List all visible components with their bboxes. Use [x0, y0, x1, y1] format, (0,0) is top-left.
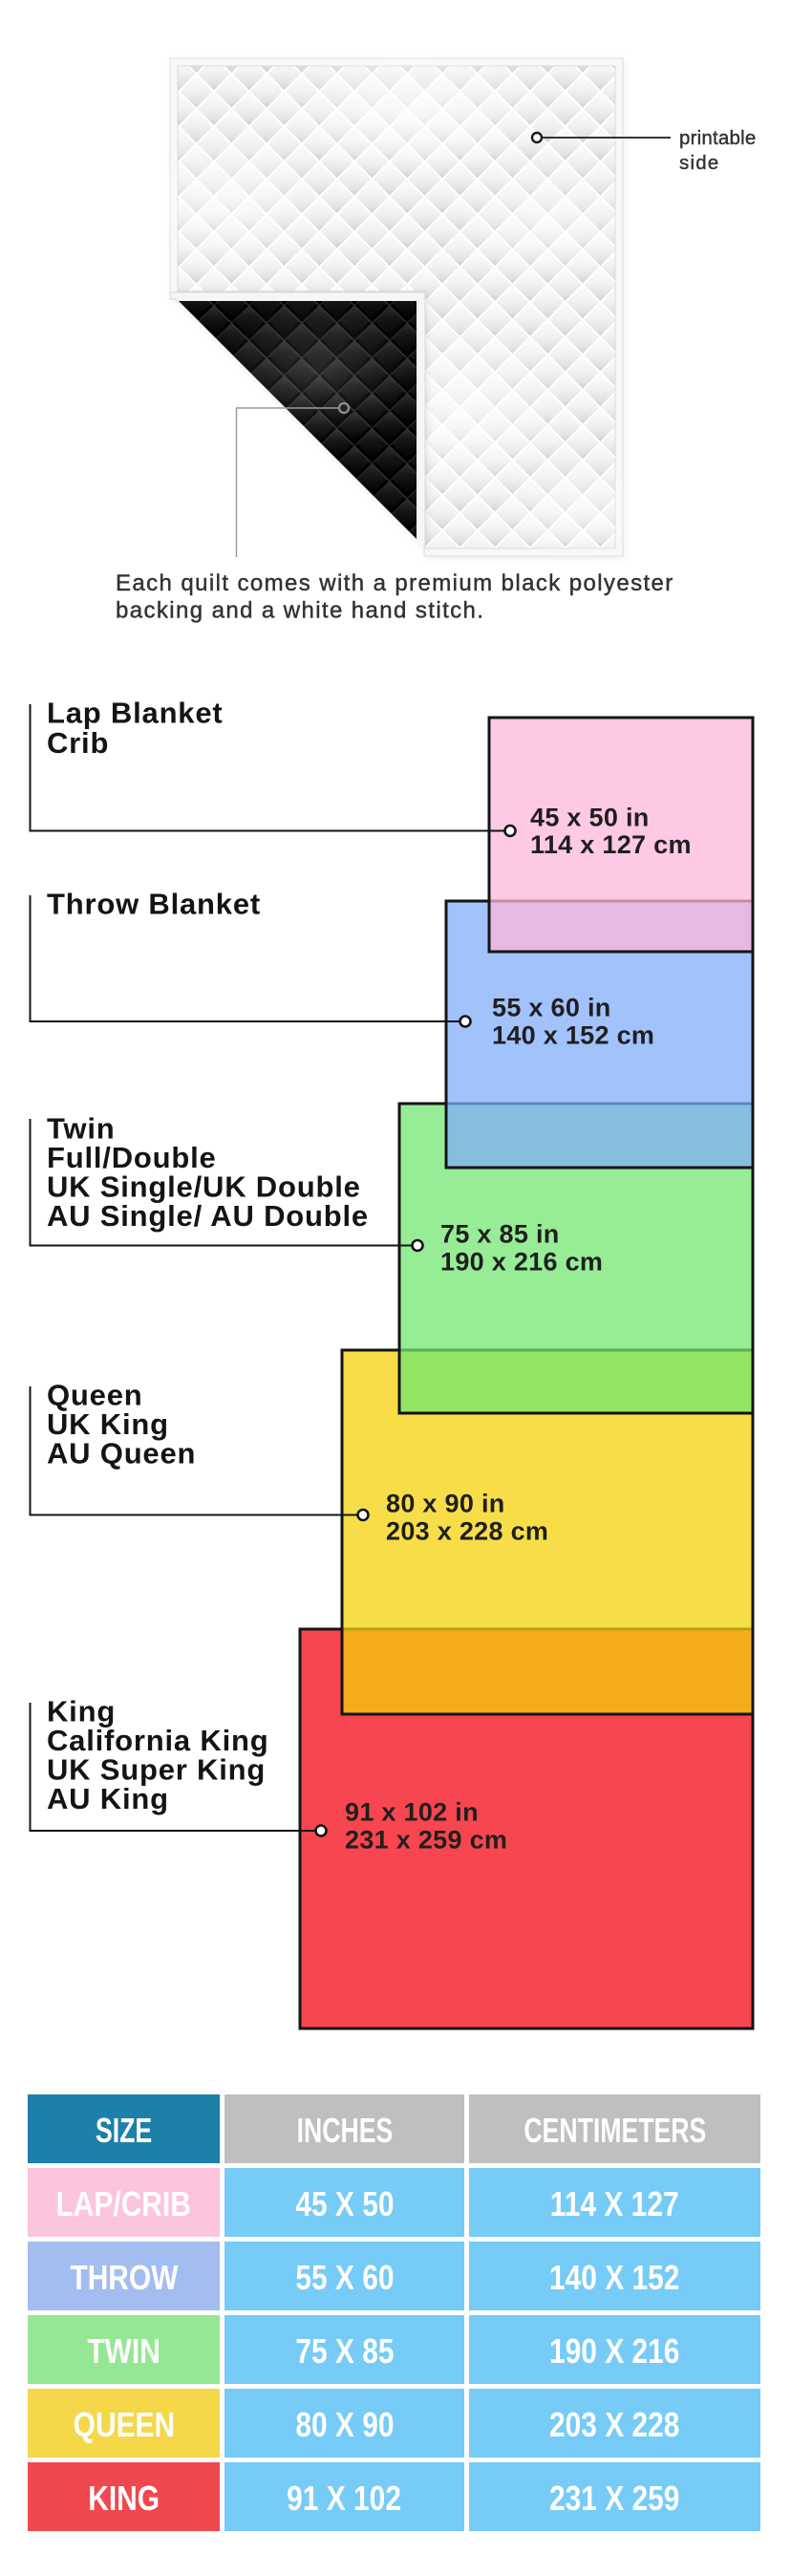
svg-text:Throw Blanket: Throw Blanket — [47, 888, 261, 921]
svg-text:backing and a white hand stitc: backing and a white hand stitch. — [116, 598, 484, 624]
svg-text:Lap Blanket: Lap Blanket — [47, 697, 224, 730]
svg-text:Crib: Crib — [47, 726, 109, 760]
svg-text:114 x 127 cm: 114 x 127 cm — [530, 830, 692, 859]
svg-text:AU Single/ AU Double: AU Single/ AU Double — [47, 1199, 369, 1233]
svg-text:printable: printable — [679, 127, 756, 149]
svg-text:side: side — [679, 152, 719, 174]
svg-text:203 x 228 cm: 203 x 228 cm — [386, 1517, 548, 1546]
svg-text:AU King: AU King — [47, 1782, 169, 1815]
svg-text:190 x 216 cm: 190 x 216 cm — [440, 1248, 603, 1277]
svg-text:80 x 90 in: 80 x 90 in — [386, 1490, 505, 1518]
svg-text:75 x 85 in: 75 x 85 in — [440, 1220, 560, 1249]
svg-text:55 x 60 in: 55 x 60 in — [492, 994, 611, 1022]
svg-text:45 x 50 in: 45 x 50 in — [530, 804, 650, 832]
svg-text:140 x 152 cm: 140 x 152 cm — [492, 1021, 654, 1050]
svg-text:Each quilt comes with a premiu: Each quilt comes with a premium black po… — [116, 570, 674, 596]
svg-text:AU Queen: AU Queen — [47, 1437, 196, 1470]
svg-text:231 x 259 cm: 231 x 259 cm — [345, 1826, 507, 1855]
svg-text:91 x 102 in: 91 x 102 in — [345, 1798, 479, 1827]
